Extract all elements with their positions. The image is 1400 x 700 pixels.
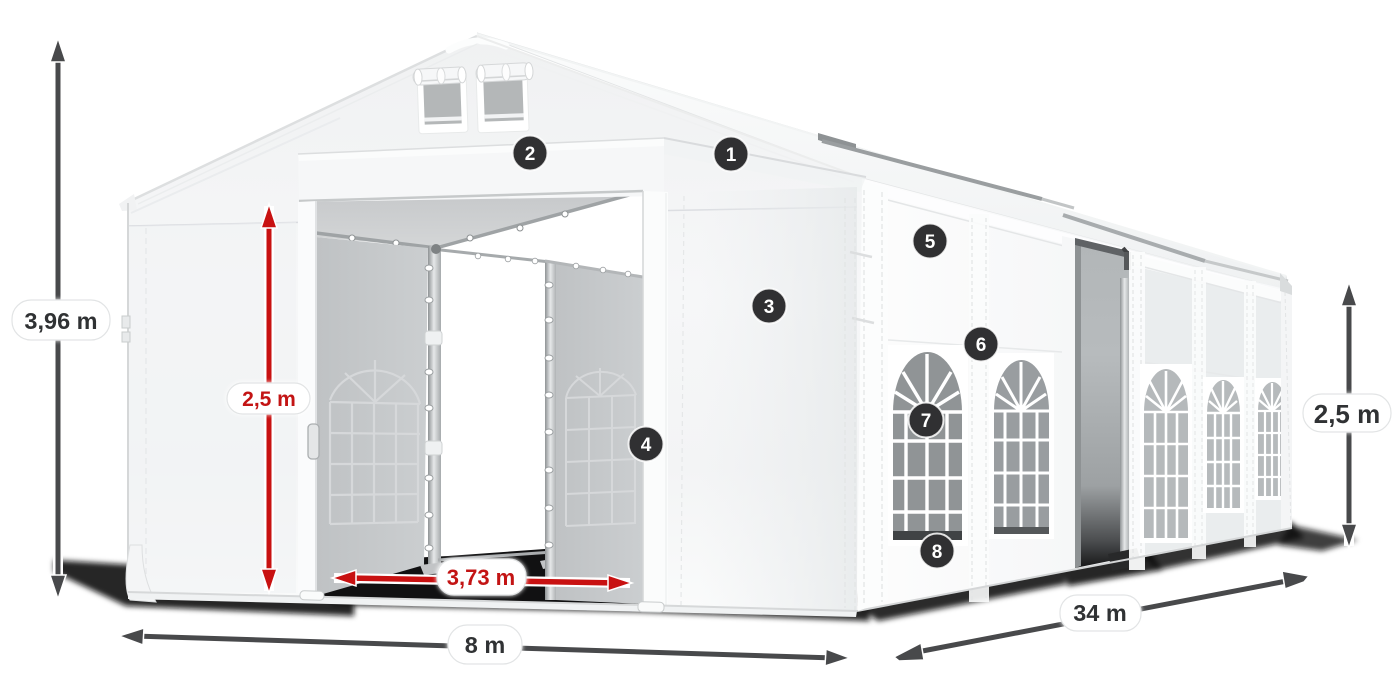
svg-text:5: 5: [925, 232, 936, 253]
svg-text:4: 4: [641, 435, 652, 456]
svg-text:7: 7: [921, 411, 932, 432]
svg-text:6: 6: [976, 335, 987, 356]
svg-text:8: 8: [932, 542, 943, 563]
svg-text:2,5 m: 2,5 m: [1314, 399, 1381, 429]
svg-text:34 m: 34 m: [1073, 600, 1127, 626]
svg-text:2,5 m: 2,5 m: [242, 388, 296, 411]
svg-text:3: 3: [764, 297, 775, 318]
svg-text:1: 1: [726, 145, 737, 166]
svg-text:3,73 m: 3,73 m: [447, 565, 516, 590]
svg-text:3,96 m: 3,96 m: [24, 308, 97, 334]
svg-text:8 m: 8 m: [465, 632, 506, 658]
svg-text:2: 2: [525, 144, 536, 165]
